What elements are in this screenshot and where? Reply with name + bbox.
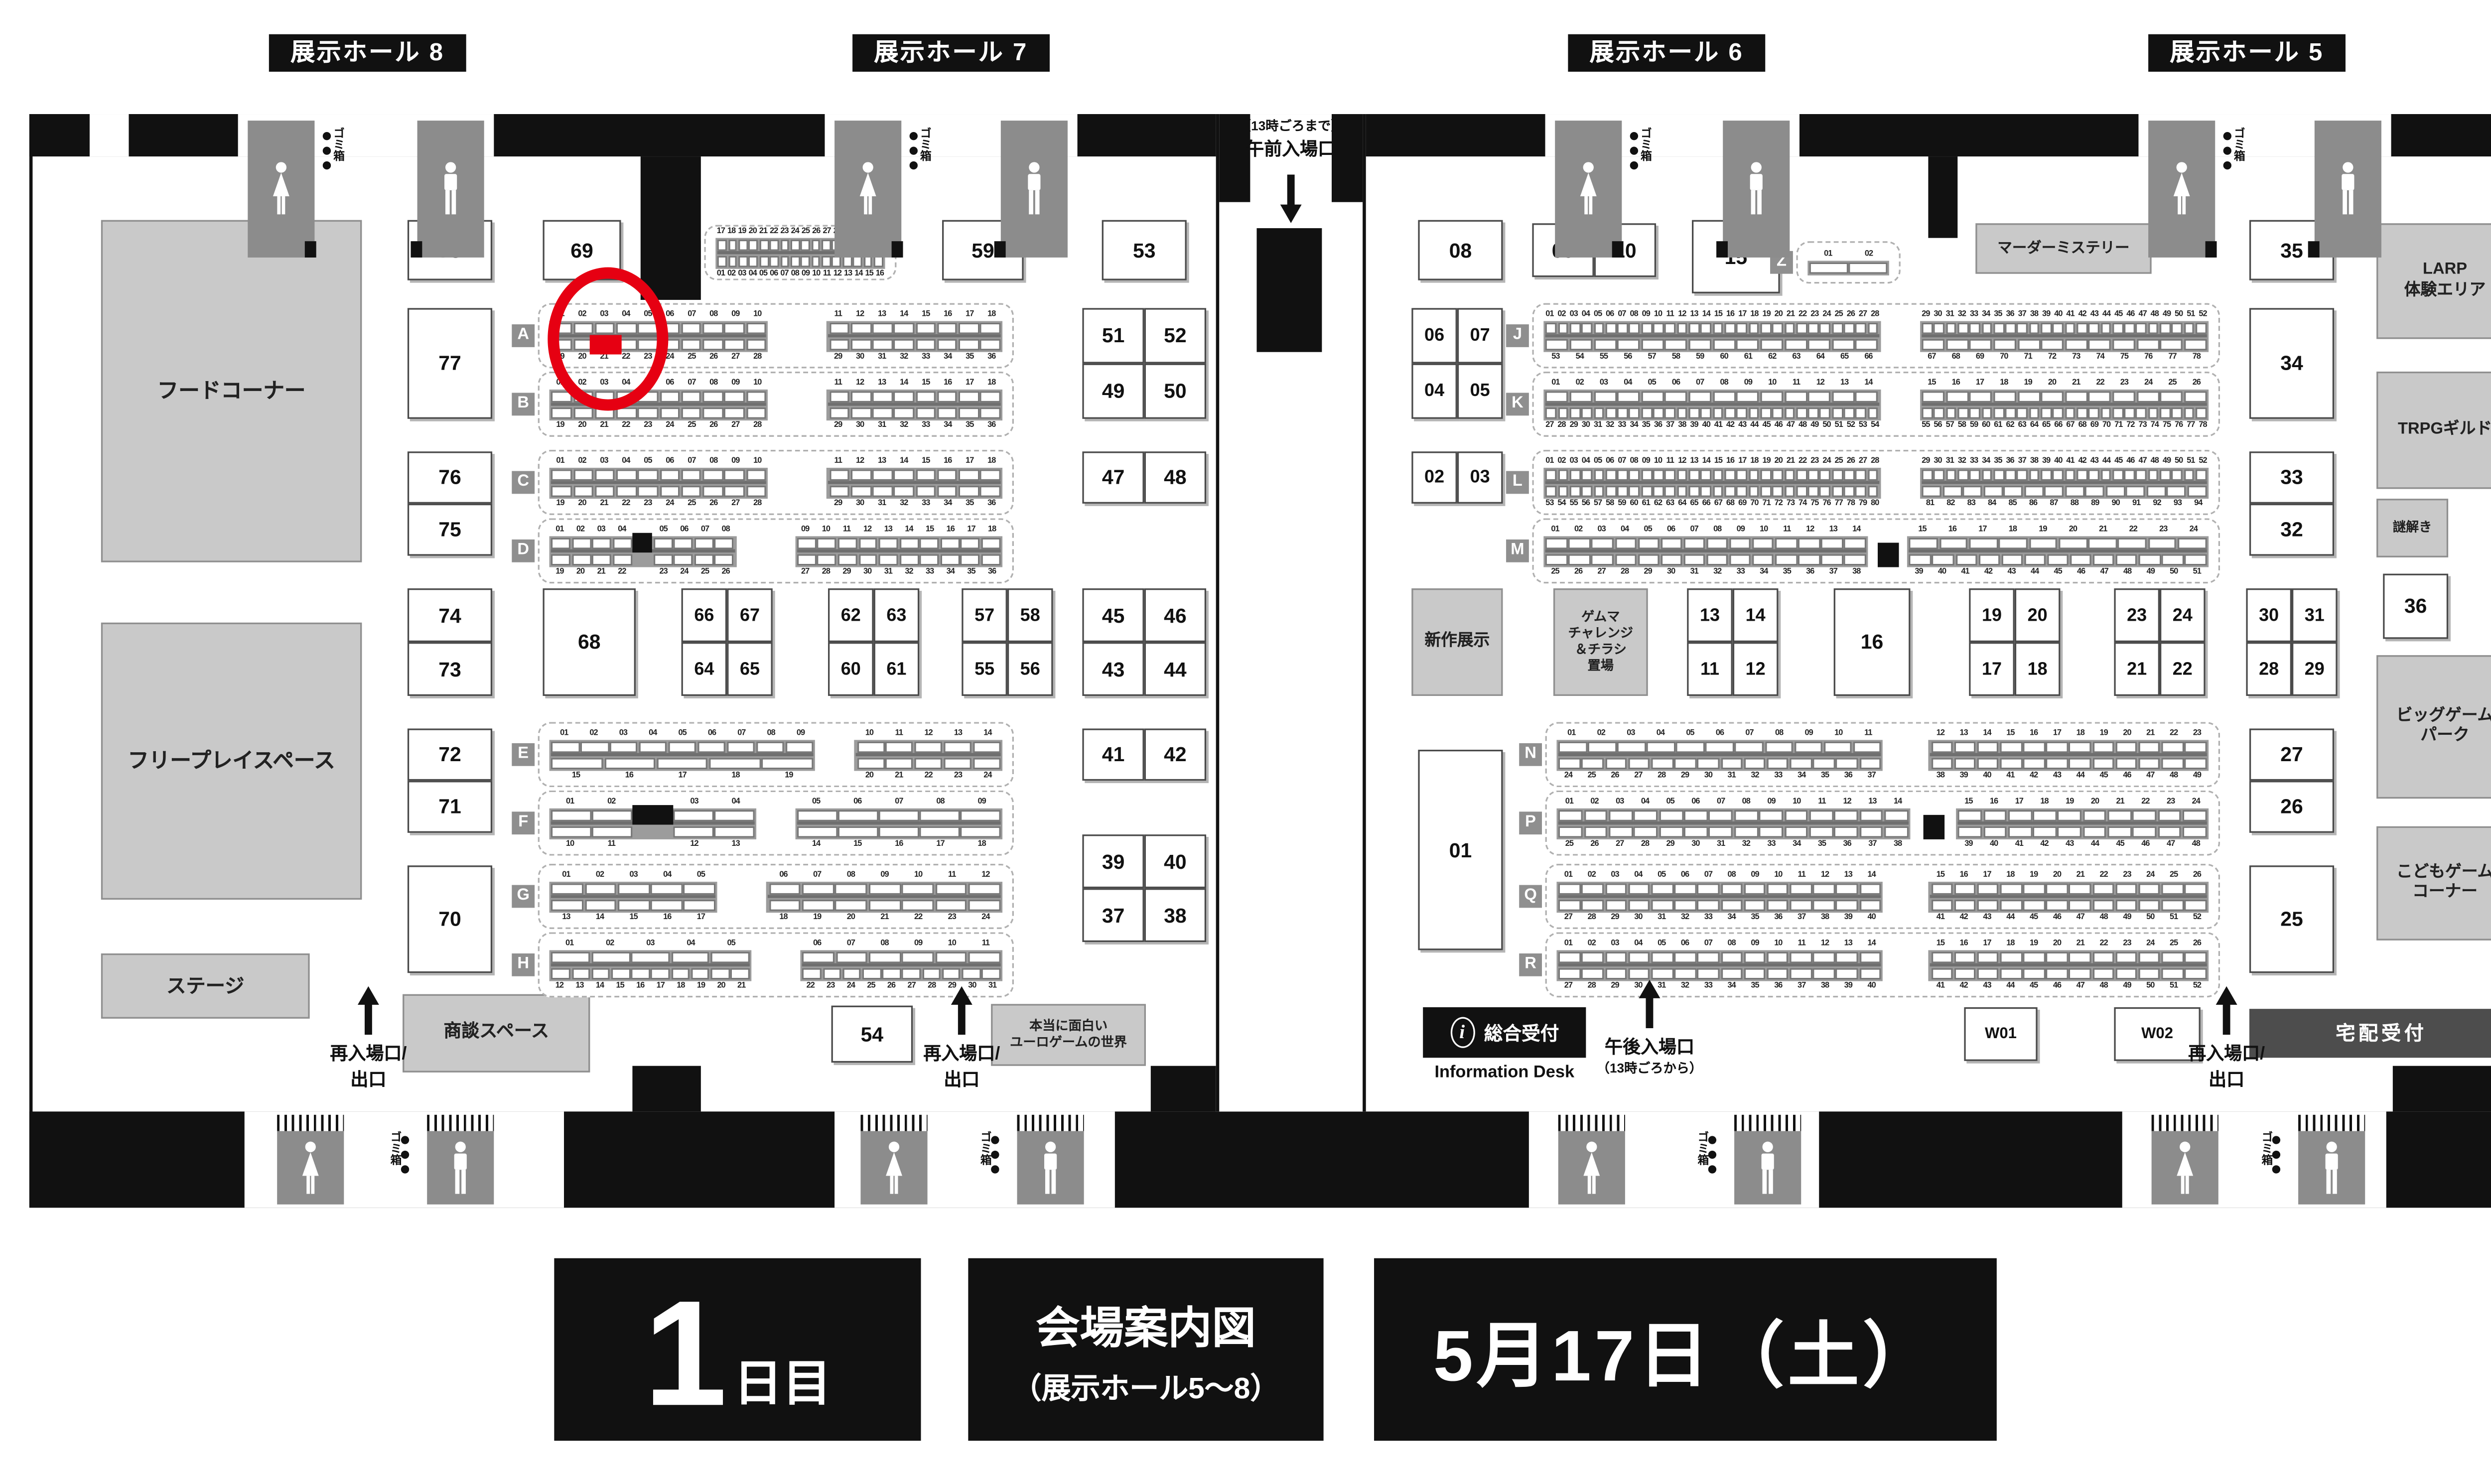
booth-number: 19 [691, 980, 711, 992]
booth-box-01: 01 [1418, 750, 1503, 950]
booth-number: 30 [857, 566, 878, 578]
booth-number: 35 [1809, 838, 1835, 850]
booth-cell [2033, 809, 2057, 820]
booth-number: 42 [1724, 419, 1736, 431]
booth-number-row: 19202122232425262728 [550, 419, 769, 431]
booth-number: 48 [2183, 838, 2209, 850]
booth-cell [1954, 967, 1976, 979]
booth-box-33: 33 [2249, 451, 2334, 504]
booth-cell [1744, 883, 1766, 894]
booth-number: 02 [570, 524, 591, 536]
booth-number: 10 [1823, 728, 1853, 739]
booth-cell [902, 899, 934, 910]
booth-number: 42 [2032, 838, 2057, 850]
booth-cell [1546, 469, 1557, 480]
booth-number-row: 0102030405060708091011 [1556, 728, 1883, 739]
booth-cell [1559, 883, 1581, 894]
trash-dots-icon [2223, 127, 2231, 169]
booth-cell [802, 899, 834, 910]
booth-number: 08 [702, 377, 724, 389]
booth-number: 35 [961, 566, 982, 578]
booth-cell [1832, 338, 1855, 350]
booth-number: 70 [2100, 419, 2112, 431]
booth-cell [2092, 899, 2114, 910]
area-label: フードコーナー [157, 378, 306, 405]
booth-cell [801, 239, 810, 250]
booth-number: 10 [901, 869, 935, 881]
booth-cell [2115, 899, 2137, 910]
booth-number: 51 [2185, 566, 2209, 578]
booth-cell [2017, 391, 2040, 402]
booth-number: 08 [1733, 796, 1759, 808]
toilet-female [1558, 1131, 1625, 1205]
booth-cell [1856, 322, 1867, 333]
booth-number: 18 [1748, 455, 1760, 467]
booth-number: 27 [1627, 770, 1650, 782]
booth-cell [674, 537, 693, 548]
strip-segment: 0102030405060708091011121314272829303132… [1543, 377, 1880, 431]
toilet-male-icon [1756, 1140, 1780, 1196]
toilet-female-icon [856, 161, 880, 217]
booth-cell [1569, 322, 1580, 333]
booth-cell [1736, 338, 1759, 350]
booth-box-73: 73 [408, 642, 492, 696]
booth-number: 20 [2058, 524, 2088, 536]
booth-cell [1674, 883, 1696, 894]
trash-dots-icon [1708, 1131, 1716, 1174]
booth-number: 01 [550, 524, 570, 536]
booth-cell [1634, 825, 1658, 837]
booth-number: 68 [2076, 419, 2088, 431]
booth-box-11: 11 [1687, 642, 1733, 696]
booth-number: 65 [1688, 498, 1700, 510]
booth-number: 24 [1556, 770, 1580, 782]
booth-cell [714, 553, 734, 565]
booth-number: 32 [1673, 980, 1697, 992]
booth-number: 06 [837, 796, 878, 808]
booth-band [827, 389, 1002, 419]
booth-number: 46 [2070, 566, 2093, 578]
booth-cell-row [1922, 322, 2207, 333]
booth-cell [937, 406, 957, 418]
booth-cell [770, 239, 779, 250]
booth-number: 04 [615, 455, 637, 467]
booth-number: 26 [1845, 455, 1857, 467]
booth-cell [1706, 553, 1728, 565]
booth-box-52: 52 [1144, 308, 1206, 363]
booth-cell [1735, 741, 1764, 752]
booth-divider [1957, 821, 2207, 825]
booth-divider [856, 753, 1001, 757]
booth-cell [920, 537, 939, 548]
booth-box-28: 28 [2246, 642, 2292, 696]
booth-number: 34 [937, 419, 959, 431]
booth-number: 45 [2112, 455, 2124, 467]
booth-number: 48 [2149, 455, 2161, 467]
booth-box-05: 05 [1457, 364, 1503, 419]
booth-number: 41 [2006, 838, 2032, 850]
booth-cell [1615, 537, 1637, 548]
booth-cell [2148, 537, 2177, 548]
booth-cell [1832, 485, 1843, 496]
booth-cell [1659, 825, 1683, 837]
booth-number: 05 [1675, 728, 1705, 739]
booth-cell [894, 391, 914, 402]
area-label: マーダーミステリー [1997, 240, 2129, 258]
booth-cell [2093, 553, 2115, 565]
booth-cell [1954, 757, 1976, 769]
booth-cell [1744, 757, 1766, 769]
booth-number-row: 2021222324 [854, 770, 1002, 782]
booth-number: 17 [684, 912, 718, 924]
strip-row-P: P010203040506070809101112131425262728293… [1545, 791, 2220, 856]
booth-cell [2000, 757, 2022, 769]
booth-number: 74 [1797, 498, 1808, 510]
booth-number: 16 [878, 838, 920, 850]
area-label: 本当に面白い [1029, 1019, 1107, 1035]
booth-cell [1609, 809, 1633, 820]
pillar-block [1923, 814, 1944, 838]
booth-number-blank [632, 566, 653, 578]
booth-number: 09 [1729, 524, 1752, 536]
booth-number: 26 [2186, 938, 2209, 949]
booth-number-row: 1112131415161718 [827, 377, 1002, 389]
booth-band [1929, 949, 2209, 980]
booth-number: 07 [1616, 309, 1628, 320]
trash-label: ゴミ箱 [1697, 1131, 1708, 1166]
booth-cell [1859, 951, 1881, 962]
booth-number: 22 [615, 419, 637, 431]
booth-number: 31 [1944, 455, 1956, 467]
booth-number: 12 [849, 309, 871, 320]
booth-number: 37 [2016, 455, 2028, 467]
booth-number: 07 [1735, 728, 1765, 739]
booth-number: 03 [608, 728, 638, 739]
booth-cell [1729, 537, 1751, 548]
booth-cell [2160, 322, 2171, 333]
booth-number: 14 [973, 728, 1002, 739]
booth-number: 02 [1580, 938, 1603, 949]
booth-box-12: 12 [1733, 642, 1779, 696]
booth-cell [2023, 741, 2045, 752]
booth-number: 06 [697, 728, 726, 739]
trash-dots-icon [910, 127, 918, 169]
booth-cell [835, 951, 868, 962]
booth-cell [2148, 406, 2159, 418]
booth-cell-row [551, 469, 767, 480]
booth-cell [2023, 883, 2045, 894]
booth-cell [886, 741, 914, 752]
booth-band [1556, 808, 1910, 838]
booth-number: 14 [893, 377, 915, 389]
booth-number: 03 [593, 455, 615, 467]
strip-row-J: J010203040506070809101112131415161718192… [1532, 303, 2220, 369]
trash-label: ゴミ箱 [2233, 127, 2244, 161]
booth-number: 16 [1952, 869, 1975, 881]
booth-number-row: 0102030405 [550, 869, 718, 881]
booth-cell [2029, 537, 2058, 548]
reentry-line: 再入場口/ [880, 1040, 1043, 1066]
booth-cell [2184, 391, 2207, 402]
booth-cell [2092, 883, 2114, 894]
booth-cell [1955, 553, 1977, 565]
booth-cell [1808, 469, 1819, 480]
toilet-female [277, 1131, 344, 1205]
booth-cell [1683, 537, 1705, 548]
booth-cell [1853, 741, 1881, 752]
booth-number: 01 [550, 728, 579, 739]
booth-cell-row [768, 883, 1001, 894]
booth-cell [2029, 469, 2040, 480]
booth-cell [2158, 809, 2182, 820]
booth-cell [1790, 967, 1811, 979]
booth-number: 35 [1743, 912, 1767, 924]
booth-number: 15 [1907, 524, 1937, 536]
strip-segment: 05060708091415161718 [796, 796, 1003, 850]
booth-number: 29 [827, 498, 849, 510]
booth-cell [2092, 951, 2114, 962]
booth-number: 13 [1860, 796, 1885, 808]
booth-cell [1701, 485, 1712, 496]
booth-number: 12 [832, 268, 842, 279]
booth-number: 42 [2076, 309, 2088, 320]
booth-cell [2112, 391, 2135, 402]
booth-cell [879, 825, 919, 837]
booth-cell [2023, 967, 2045, 979]
booth-number: 19 [762, 770, 816, 782]
strip-letter-badge: M [1506, 540, 1529, 562]
booth-number-row: 5354555657585960616263646566676869707172… [1543, 498, 1880, 510]
booth-divider [829, 481, 1000, 484]
booth-cell [1689, 391, 1712, 402]
booth-number: 19 [550, 419, 571, 431]
booth-number: 35 [959, 351, 980, 363]
booth-number: 23 [2148, 524, 2178, 536]
booth-divider [551, 753, 814, 757]
booth-number: 33 [1767, 770, 1790, 782]
booth-number-row: 414243444546474849505152 [1929, 980, 2209, 992]
booth-number: 24 [659, 498, 681, 510]
booth-number: 38 [2028, 309, 2040, 320]
booth-cell [1605, 883, 1627, 894]
booth-number: 19 [800, 912, 834, 924]
booth-cell [2136, 391, 2159, 402]
booth-number: 28 [1555, 419, 1567, 431]
booth-cell [2115, 741, 2137, 752]
booth-cell [915, 406, 936, 418]
booth-cell [857, 741, 885, 752]
booth-cell [2112, 469, 2123, 480]
booth-cell [1813, 967, 1835, 979]
booth-number: 10 [1652, 455, 1664, 467]
booth-cell [857, 757, 885, 769]
booth-cell [1934, 406, 1944, 418]
booth-cell [1809, 825, 1833, 837]
booth-number: 34 [937, 351, 959, 363]
booth-number: 47 [2092, 566, 2116, 578]
booth-cell [1720, 899, 1742, 910]
booth-cell [1582, 757, 1604, 769]
booth-cell [1569, 469, 1580, 480]
booth-cell [1617, 406, 1628, 418]
booth-number-row: 2930313233343536373839404142434445464748… [1920, 309, 2209, 320]
booth-cell [944, 757, 971, 769]
booth-cell [2160, 469, 2171, 480]
booth-cell [702, 391, 723, 402]
booth-cell [1677, 322, 1688, 333]
booth-number-row: 2425262728293031323334353637 [1556, 770, 1883, 782]
booth-divider [1545, 549, 1867, 553]
booth-number: 18 [1999, 869, 2022, 881]
booth-box-45: 45 [1082, 588, 1144, 642]
booth-cell [935, 883, 967, 894]
booth-cell [1849, 263, 1887, 274]
booth-number: 02 [579, 728, 608, 739]
booth-number: 11 [1664, 309, 1676, 320]
booth-number: 12 [914, 728, 943, 739]
booth-number: 45 [2022, 980, 2046, 992]
booth-cell [1767, 899, 1789, 910]
booth-cell [2138, 741, 2160, 752]
toilet-male [427, 1131, 494, 1205]
booth-number: 40 [1860, 912, 1883, 924]
booth-number: 38 [1813, 912, 1837, 924]
booth-number: 04 [671, 938, 711, 949]
booth-number: 33 [1616, 419, 1628, 431]
booth-number: 06 [1673, 938, 1697, 949]
booth-cell [1784, 469, 1795, 480]
booth-number: 17 [656, 770, 709, 782]
booth-number: 22 [2162, 728, 2186, 739]
booth-number: 35 [959, 498, 980, 510]
booth-cell [1922, 322, 1933, 333]
booth-number: 22 [2088, 377, 2112, 389]
trash-label: ゴミ箱 [919, 127, 931, 161]
booth-number: 03 [1607, 796, 1633, 808]
booth-cell-row [768, 899, 1001, 910]
booth-number: 58 [1664, 351, 1688, 363]
booth-number: 19 [2057, 796, 2082, 808]
booth-number: 46 [1773, 419, 1785, 431]
booth-number: 16 [630, 980, 651, 992]
wall-tick [2308, 241, 2320, 258]
toilet-male-icon [448, 1140, 473, 1196]
booth-cell [1859, 757, 1881, 769]
booth-number: 30 [849, 351, 871, 363]
booth-number: 17 [715, 226, 726, 237]
booth-band [854, 739, 1002, 770]
booth-number: 31 [1592, 419, 1604, 431]
booth-number-row: 676869707172737475767778 [1920, 351, 2209, 363]
booth-cell [1981, 469, 1992, 480]
booth-cell [1605, 406, 1616, 418]
booth-number: 90 [2105, 498, 2126, 510]
booth-number: 93 [2167, 498, 2188, 510]
booth-cell [1977, 967, 1999, 979]
booth-cell [872, 485, 893, 496]
booth-cell [980, 485, 1000, 496]
booth-number: 66 [1700, 498, 1712, 510]
booth-cell [879, 537, 898, 548]
booth-number: 48 [2116, 566, 2139, 578]
trash-dots-icon [323, 127, 331, 169]
booth-number: 36 [2004, 309, 2016, 320]
booth-number: 15 [617, 912, 651, 924]
booth-cell [961, 825, 1000, 837]
booth-cell [981, 553, 1000, 565]
booth-number: 44 [1748, 419, 1760, 431]
booth-number: 74 [2149, 419, 2161, 431]
booth-cell [1701, 406, 1712, 418]
booth-cell [1820, 406, 1831, 418]
booth-cell [2000, 899, 2022, 910]
booth-number: 18 [1748, 309, 1760, 320]
booth-number: 12 [857, 524, 878, 536]
booth-cell [2118, 537, 2147, 548]
booth-cell [842, 967, 861, 979]
booth-cell [1813, 951, 1835, 962]
booth-cell [2065, 406, 2076, 418]
booth-number: 06 [800, 938, 834, 949]
booth-number: 15 [1920, 377, 1943, 389]
booth-cell [638, 469, 658, 480]
booth-box-46: 46 [1144, 588, 1206, 642]
booth-number: 22 [612, 566, 633, 578]
booth-number: 02 [590, 938, 630, 949]
booth-number: 30 [1580, 419, 1592, 431]
booth-number: 25 [2162, 938, 2186, 949]
booth-cell [1813, 899, 1835, 910]
booth-number: 44 [1999, 980, 2022, 992]
booth-cell [1999, 537, 2028, 548]
booth-number: 28 [1580, 912, 1603, 924]
booth-number: 34 [1784, 838, 1809, 850]
booth-cell-row [1558, 809, 1909, 820]
booth-number: 41 [1999, 770, 2022, 782]
booth-cell [2138, 899, 2160, 910]
strip-row-N: N010203040506070809101124252627282930313… [1545, 722, 2220, 787]
booth-number: 06 [674, 524, 695, 536]
booth-number: 30 [1696, 770, 1720, 782]
structural-pillar [1928, 156, 1957, 238]
booth-cell [1798, 537, 1820, 548]
booth-number: 49 [2161, 309, 2173, 320]
booth-cell [1634, 809, 1658, 820]
booth-divider [1931, 963, 2207, 967]
booth-number: 21 [2064, 377, 2088, 389]
booth-number: 16 [650, 912, 684, 924]
booth-cell-row [1558, 883, 1882, 894]
strip-segment: 10111213142021222324 [854, 728, 1002, 782]
booth-cell [851, 391, 871, 402]
booth-cell-row [551, 825, 755, 837]
booth-number: 62 [1652, 498, 1664, 510]
booth-number: 76 [2173, 419, 2185, 431]
booth-number: 02 [1580, 869, 1603, 881]
booth-number: 12 [1676, 309, 1688, 320]
booth-box-47: 47 [1082, 451, 1144, 504]
booth-divider [797, 821, 1001, 825]
booth-number: 85 [2002, 498, 2023, 510]
booth-cell [1651, 757, 1673, 769]
area-label: 商談スペース [443, 1022, 549, 1045]
booth-cell [2161, 967, 2183, 979]
strip-segment: 06070809101122232425262728293031 [800, 938, 1002, 992]
booth-cell [2023, 899, 2045, 910]
booth-cell [1676, 741, 1705, 752]
booth-number: 31 [982, 980, 1003, 992]
trash-bin-label: ゴミ箱 [1695, 1131, 1739, 1174]
